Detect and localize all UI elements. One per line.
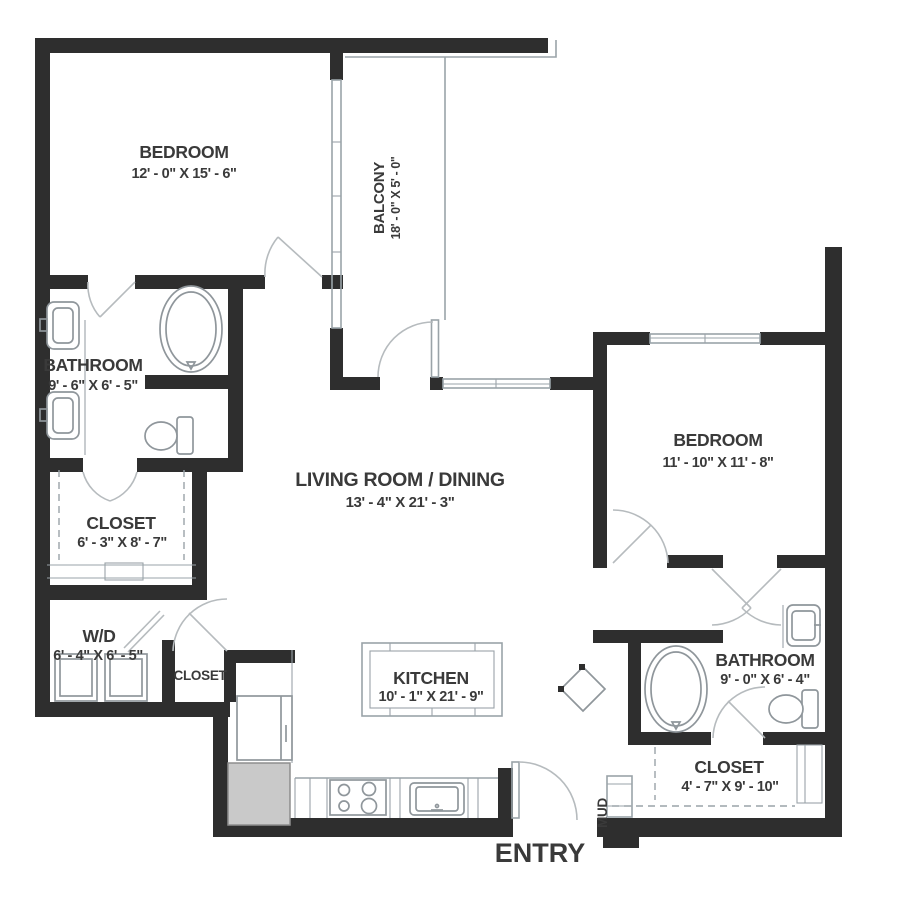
bathroom1-title: BATHROOM bbox=[43, 355, 142, 375]
bedroom1-door bbox=[265, 237, 322, 277]
floor-plan-drawing: BEDROOM 12' - 0" X 15' - 6" BALCONY 18' … bbox=[0, 0, 900, 900]
living-title: LIVING ROOM / DINING bbox=[295, 469, 505, 491]
balcony-door bbox=[378, 320, 439, 377]
floor-plan: BEDROOM 12' - 0" X 15' - 6" BALCONY 18' … bbox=[0, 0, 900, 900]
closet1-title: CLOSET bbox=[86, 513, 156, 533]
toilet-1 bbox=[145, 417, 193, 454]
hall-closet-door bbox=[173, 599, 227, 651]
stove bbox=[330, 780, 386, 815]
balcony-title: BALCONY bbox=[371, 162, 388, 234]
bedroom2-door bbox=[613, 510, 668, 563]
room-label-living: LIVING ROOM / DINING 13' - 4" X 21' - 3" bbox=[295, 469, 505, 511]
bedroom1-title: BEDROOM bbox=[139, 142, 228, 162]
pantry-block bbox=[228, 763, 290, 825]
hall-closet-label: CLOSET bbox=[174, 668, 228, 683]
laundry-door bbox=[124, 611, 164, 652]
closet2-dims: 4' - 7" X 9' - 10" bbox=[681, 779, 778, 795]
kitchen-title: KITCHEN bbox=[393, 668, 469, 688]
room-label-kitchen: KITCHEN 10' - 1" X 21' - 9" bbox=[379, 668, 484, 705]
room-label-bedroom2: BEDROOM 11' - 10" X 11' - 8" bbox=[663, 430, 774, 471]
room-label-bedroom1: BEDROOM 12' - 0" X 15' - 6" bbox=[132, 142, 237, 182]
bathroom1-door bbox=[88, 282, 135, 317]
bathroom1-dims: 9' - 6" X 6' - 5" bbox=[48, 378, 138, 394]
room-label-bathroom2: BATHROOM 9' - 0" X 6' - 4" bbox=[715, 650, 814, 688]
living-dims: 13' - 4" X 21' - 3" bbox=[346, 494, 455, 511]
bathroom2-vestibule-doors bbox=[712, 569, 781, 625]
room-label-closet1: CLOSET 6' - 3" X 8' - 7" bbox=[77, 513, 167, 551]
bedroom2-dims: 11' - 10" X 11' - 8" bbox=[663, 455, 774, 471]
toilet-2 bbox=[769, 690, 818, 728]
entry-door bbox=[512, 762, 577, 820]
closet2-title: CLOSET bbox=[694, 757, 764, 777]
entry-label: ENTRY bbox=[495, 838, 586, 868]
bathroom2-title: BATHROOM bbox=[715, 650, 814, 670]
closet1-dims: 6' - 3" X 8' - 7" bbox=[77, 535, 167, 551]
sink-3 bbox=[783, 605, 821, 648]
room-label-balcony: BALCONY 18' - 0" X 5' - 0" bbox=[371, 156, 403, 239]
mud-bench bbox=[607, 776, 632, 817]
room-label-laundry: W/D 6' - 4" X 6' - 5" bbox=[53, 626, 143, 664]
room-labels: BEDROOM 12' - 0" X 15' - 6" BALCONY 18' … bbox=[43, 142, 814, 868]
refrigerator bbox=[237, 696, 292, 760]
bathtub-2 bbox=[645, 646, 707, 732]
room-label-closet2: CLOSET 4' - 7" X 9' - 10" bbox=[681, 757, 778, 795]
bathroom2-dims: 9' - 0" X 6' - 4" bbox=[720, 672, 810, 688]
bedroom2-title: BEDROOM bbox=[673, 430, 762, 450]
kitchen-sink bbox=[410, 783, 464, 815]
laundry-title: W/D bbox=[82, 626, 115, 646]
corner-stand bbox=[558, 664, 605, 711]
room-label-bathroom1: BATHROOM 9' - 6" X 6' - 5" bbox=[43, 355, 142, 394]
closet2-door bbox=[713, 687, 765, 738]
balcony-dims: 18' - 0" X 5' - 0" bbox=[389, 156, 403, 239]
closet1-double-doors bbox=[83, 472, 137, 501]
mud-label: MUD bbox=[595, 798, 610, 828]
kitchen-dims: 10' - 1" X 21' - 9" bbox=[379, 689, 484, 705]
bathtub-1 bbox=[160, 286, 222, 372]
bedroom1-dims: 12' - 0" X 15' - 6" bbox=[132, 166, 237, 182]
laundry-dims: 6' - 4" X 6' - 5" bbox=[53, 648, 143, 664]
